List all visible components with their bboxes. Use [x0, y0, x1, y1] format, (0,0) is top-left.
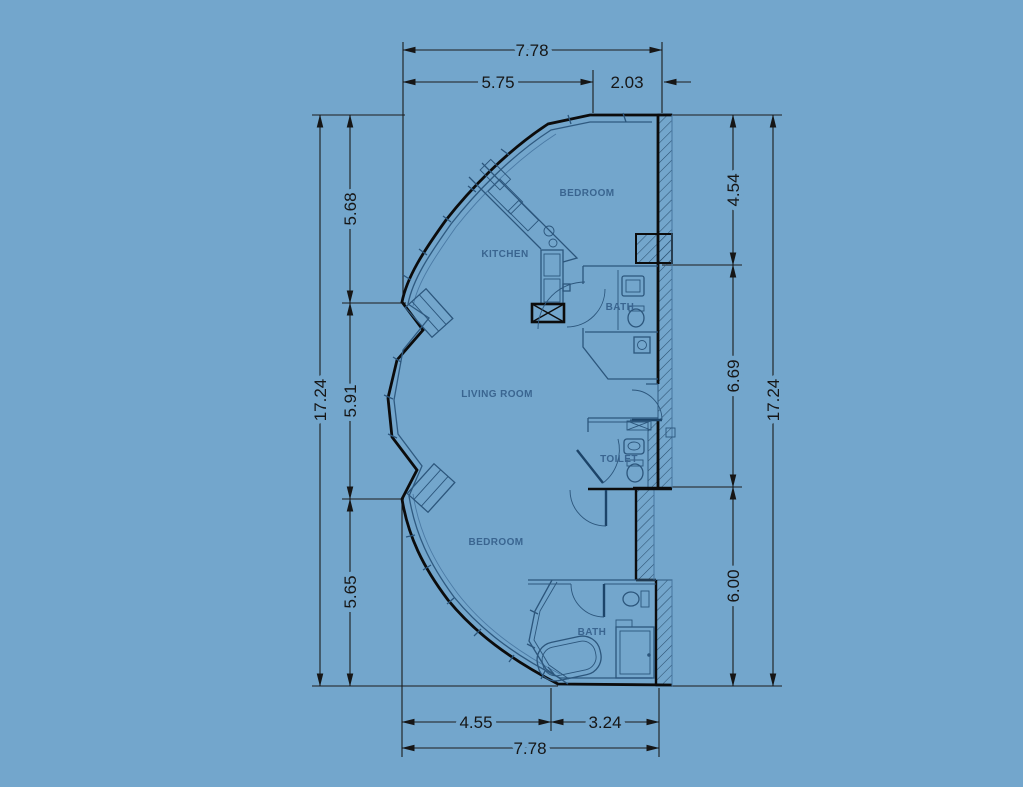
dim-right-seg-3: 6.00 [724, 569, 743, 602]
dim-top-right: 2.03 [610, 73, 643, 92]
dim-top-overall: 7.78 [515, 41, 548, 60]
dim-left-seg-2: 5.91 [341, 384, 360, 417]
dim-top-left: 5.75 [481, 73, 514, 92]
dim-right-seg-1: 4.54 [724, 173, 743, 206]
room-label-bath-middle: BATH [606, 302, 635, 313]
dim-right-overall: 17.24 [764, 379, 783, 422]
room-label-bedroom-top: BEDROOM [559, 188, 614, 199]
room-label-kitchen: KITCHEN [481, 249, 528, 260]
dim-left-overall: 17.24 [311, 379, 330, 422]
room-label-living-room: LIVING ROOM [461, 389, 533, 400]
room-label-bedroom-bottom: BEDROOM [468, 537, 523, 548]
dim-bottom-right: 3.24 [588, 713, 621, 732]
dim-left-seg-1: 5.68 [341, 192, 360, 225]
room-label-bath-bottom: BATH [578, 627, 607, 638]
room-label-toilet: TOILET [600, 454, 638, 465]
floor-plan-canvas: 7.78 5.75 2.03 4.55 3.24 7.78 17.24 5.68… [0, 0, 1023, 787]
dim-right-seg-2: 6.69 [724, 359, 743, 392]
dim-bottom-overall: 7.78 [513, 739, 546, 758]
dim-left-seg-3: 5.65 [341, 575, 360, 608]
dim-bottom-left: 4.55 [459, 713, 492, 732]
